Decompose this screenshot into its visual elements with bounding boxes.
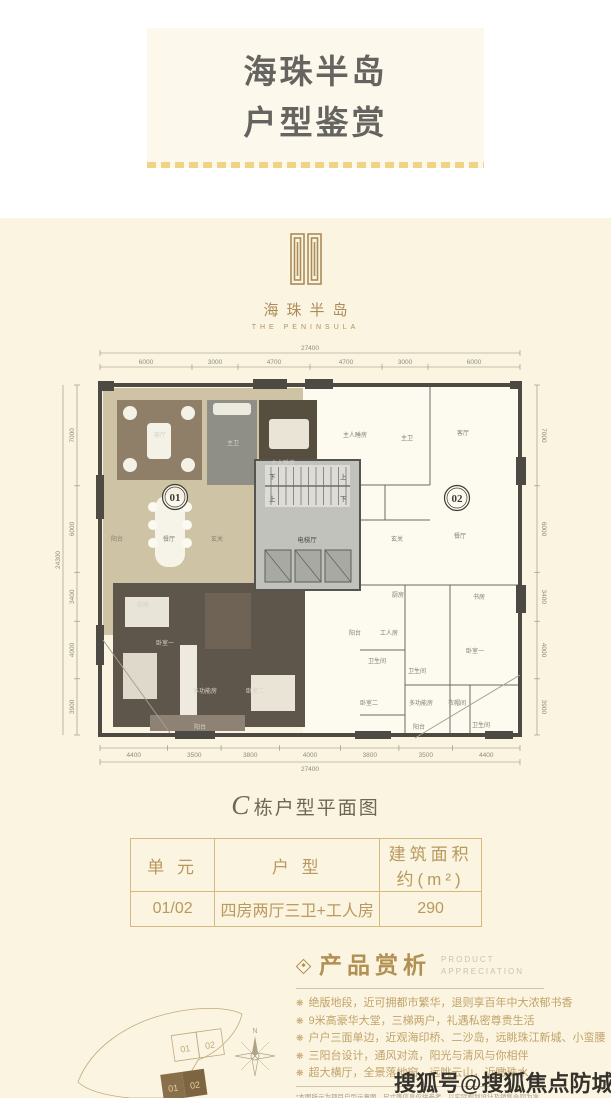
svg-text:3900: 3900 <box>540 700 547 715</box>
feature-text: 绝版地段，近可拥都市繁华，退则享百年中大浓郁书香 <box>309 995 573 1013</box>
svg-text:3500: 3500 <box>418 752 433 759</box>
compass-icon: N <box>235 1028 275 1076</box>
svg-text:电梯厅: 电梯厅 <box>297 535 317 544</box>
svg-text:4400: 4400 <box>126 752 141 759</box>
page-title-line2: 户型鉴赏 <box>147 97 484 148</box>
features-subtitle: PRODUCT APPRECIATION <box>441 954 524 980</box>
room-label: 主卫 <box>227 439 239 447</box>
room-label: 餐厅 <box>163 535 175 543</box>
cell-layout: 四房两厅三卫+工人房 <box>215 892 380 927</box>
unit-01-badge: 01 <box>163 485 188 510</box>
svg-text:24300: 24300 <box>55 551 62 569</box>
logo-name-cn: 海珠半岛 <box>0 299 611 320</box>
bullet-icon: ❋ <box>296 1048 304 1066</box>
feature-text: 户户三面单边，近观海印桥、二沙岛，远眺珠江新城、小蛮腰 <box>309 1030 606 1048</box>
poster-page: 海珠半岛 户型鉴赏 海珠半岛 THE PENINSULA <box>0 0 611 1098</box>
svg-text:上: 上 <box>340 472 347 481</box>
room-label: 厨房 <box>137 601 149 609</box>
header-area: 建筑面积约(m²) <box>380 839 482 892</box>
page-header: 海珠半岛 户型鉴赏 <box>147 28 484 168</box>
header-layout: 户 型 <box>215 839 380 892</box>
svg-text:02: 02 <box>204 1040 215 1051</box>
room-label: 阳台 <box>111 535 123 543</box>
room-label: 阳台 <box>194 723 206 731</box>
svg-text:01: 01 <box>168 1083 179 1094</box>
logo-name-en: THE PENINSULA <box>0 324 611 331</box>
features-title: 产品赏析 <box>319 946 431 980</box>
svg-text:27400: 27400 <box>301 345 319 352</box>
watermark-text: 搜狐号@搜狐焦点防城港站 <box>394 1066 611 1098</box>
bullet-icon: ❋ <box>296 1030 304 1048</box>
spec-data-row: 01/02 四房两厅三卫+工人房 290 <box>131 892 482 927</box>
room-label: 阳台 <box>413 723 425 731</box>
room-label: 玄关 <box>391 535 403 543</box>
bullet-icon: ❋ <box>296 1065 304 1083</box>
room-label: 卫生间 <box>408 667 426 675</box>
content-panel: 海珠半岛 THE PENINSULA <box>0 218 611 1098</box>
room-label: 多功能房 <box>409 699 433 707</box>
features-subtitle-line1: PRODUCT <box>441 954 524 966</box>
svg-text:4400: 4400 <box>479 752 494 759</box>
room-label: 卧室二 <box>246 687 264 695</box>
svg-text:02: 02 <box>452 493 464 505</box>
features-header: 产品赏析 PRODUCT APPRECIATION <box>296 946 596 980</box>
svg-text:4000: 4000 <box>540 643 547 658</box>
room-label: 主人睡房 <box>271 459 295 467</box>
plan-caption: C 栋户型平面图 <box>0 790 611 821</box>
caption-text: 栋户型平面图 <box>254 798 380 819</box>
room-label: 卧室一 <box>156 639 174 647</box>
room-label: 卧室一 <box>466 647 484 655</box>
svg-text:上: 上 <box>269 494 276 503</box>
svg-text:01: 01 <box>170 492 181 504</box>
bullet-icon: ❋ <box>296 995 304 1013</box>
cell-unit: 01/02 <box>131 892 215 927</box>
svg-text:N: N <box>252 1028 257 1035</box>
svg-text:02: 02 <box>189 1080 200 1091</box>
svg-text:4000: 4000 <box>69 642 76 657</box>
siteplan-drawing: 01 02 01 02 N <box>70 1000 290 1098</box>
floorplan-drawing: 01 02 电梯厅 下 上 上 下 客厅主卫主人睡房餐厅阳台玄关厨房卧室一多功能… <box>55 345 555 785</box>
unit-spec-table: 单 元 户 型 建筑面积约(m²) 01/02 四房两厅三卫+工人房 290 <box>130 838 482 927</box>
svg-text:6000: 6000 <box>467 359 482 366</box>
svg-text:4700: 4700 <box>339 359 354 366</box>
feature-item: ❋9米高豪华大堂，三梯两户，礼遇私密尊贵生活 <box>296 1013 596 1031</box>
bullet-icon: ❋ <box>296 1013 304 1031</box>
svg-text:3000: 3000 <box>208 359 223 366</box>
room-label: 多功能房 <box>193 687 217 695</box>
svg-text:6000: 6000 <box>139 359 154 366</box>
room-label: 餐厅 <box>454 532 466 540</box>
room-label: 衣帽间 <box>448 699 466 707</box>
unit-02-badge: 02 <box>445 486 470 511</box>
feature-item: ❋绝版地段，近可拥都市繁华，退则享百年中大浓郁书香 <box>296 995 596 1013</box>
svg-text:3900: 3900 <box>69 699 76 714</box>
logo-emblem-icon <box>288 232 324 286</box>
room-label: 卧室二 <box>360 699 378 707</box>
svg-text:3500: 3500 <box>187 752 202 759</box>
room-label: 厨房 <box>392 591 404 599</box>
room-label: 玄关 <box>211 535 223 543</box>
feature-item: ❋户户三面单边，近观海印桥、二沙岛，远眺珠江新城、小蛮腰 <box>296 1030 596 1048</box>
svg-text:3800: 3800 <box>243 752 258 759</box>
feature-text: 三阳台设计，通风对流，阳光与清风与你相伴 <box>309 1048 529 1066</box>
svg-text:7000: 7000 <box>69 428 76 443</box>
svg-text:3400: 3400 <box>540 589 547 604</box>
room-label: 卫生间 <box>368 657 386 665</box>
room-label: 客厅 <box>154 431 166 439</box>
svg-text:3000: 3000 <box>398 359 413 366</box>
svg-text:27400: 27400 <box>301 766 319 773</box>
room-label: 主卫 <box>401 434 413 442</box>
room-label: 客厅 <box>457 429 469 437</box>
room-label: 书房 <box>473 593 485 601</box>
svg-text:下: 下 <box>269 473 276 481</box>
features-subtitle-line2: APPRECIATION <box>441 966 524 978</box>
room-label: 卫生间 <box>472 721 490 729</box>
svg-text:4700: 4700 <box>267 359 282 366</box>
svg-text:6000: 6000 <box>69 521 76 536</box>
svg-text:6000: 6000 <box>540 522 547 537</box>
highlighted-building: 01 02 <box>160 1069 207 1098</box>
cell-area: 290 <box>380 892 482 927</box>
room-label: 阳台 <box>349 629 361 637</box>
svg-text:3400: 3400 <box>69 589 76 604</box>
feature-text: 9米高豪华大堂，三梯两户，礼遇私密尊贵生活 <box>309 1013 535 1031</box>
svg-text:01: 01 <box>180 1043 191 1054</box>
svg-text:7000: 7000 <box>540 428 547 443</box>
header-dashed-divider <box>147 162 484 168</box>
svg-text:下: 下 <box>340 495 347 503</box>
page-title-line1: 海珠半岛 <box>147 46 484 97</box>
diamond-icon <box>296 959 312 975</box>
feature-item: ❋三阳台设计，通风对流，阳光与清风与你相伴 <box>296 1048 596 1066</box>
room-label: 主人睡房 <box>343 431 367 439</box>
header-unit: 单 元 <box>131 839 215 892</box>
svg-text:3800: 3800 <box>363 752 378 759</box>
svg-text:4000: 4000 <box>303 752 318 759</box>
caption-building: C <box>231 790 249 820</box>
room-label: 工人房 <box>380 629 398 637</box>
spec-header-row: 单 元 户 型 建筑面积约(m²) <box>131 839 482 892</box>
brand-logo: 海珠半岛 THE PENINSULA <box>0 232 611 331</box>
features-divider <box>296 988 544 989</box>
